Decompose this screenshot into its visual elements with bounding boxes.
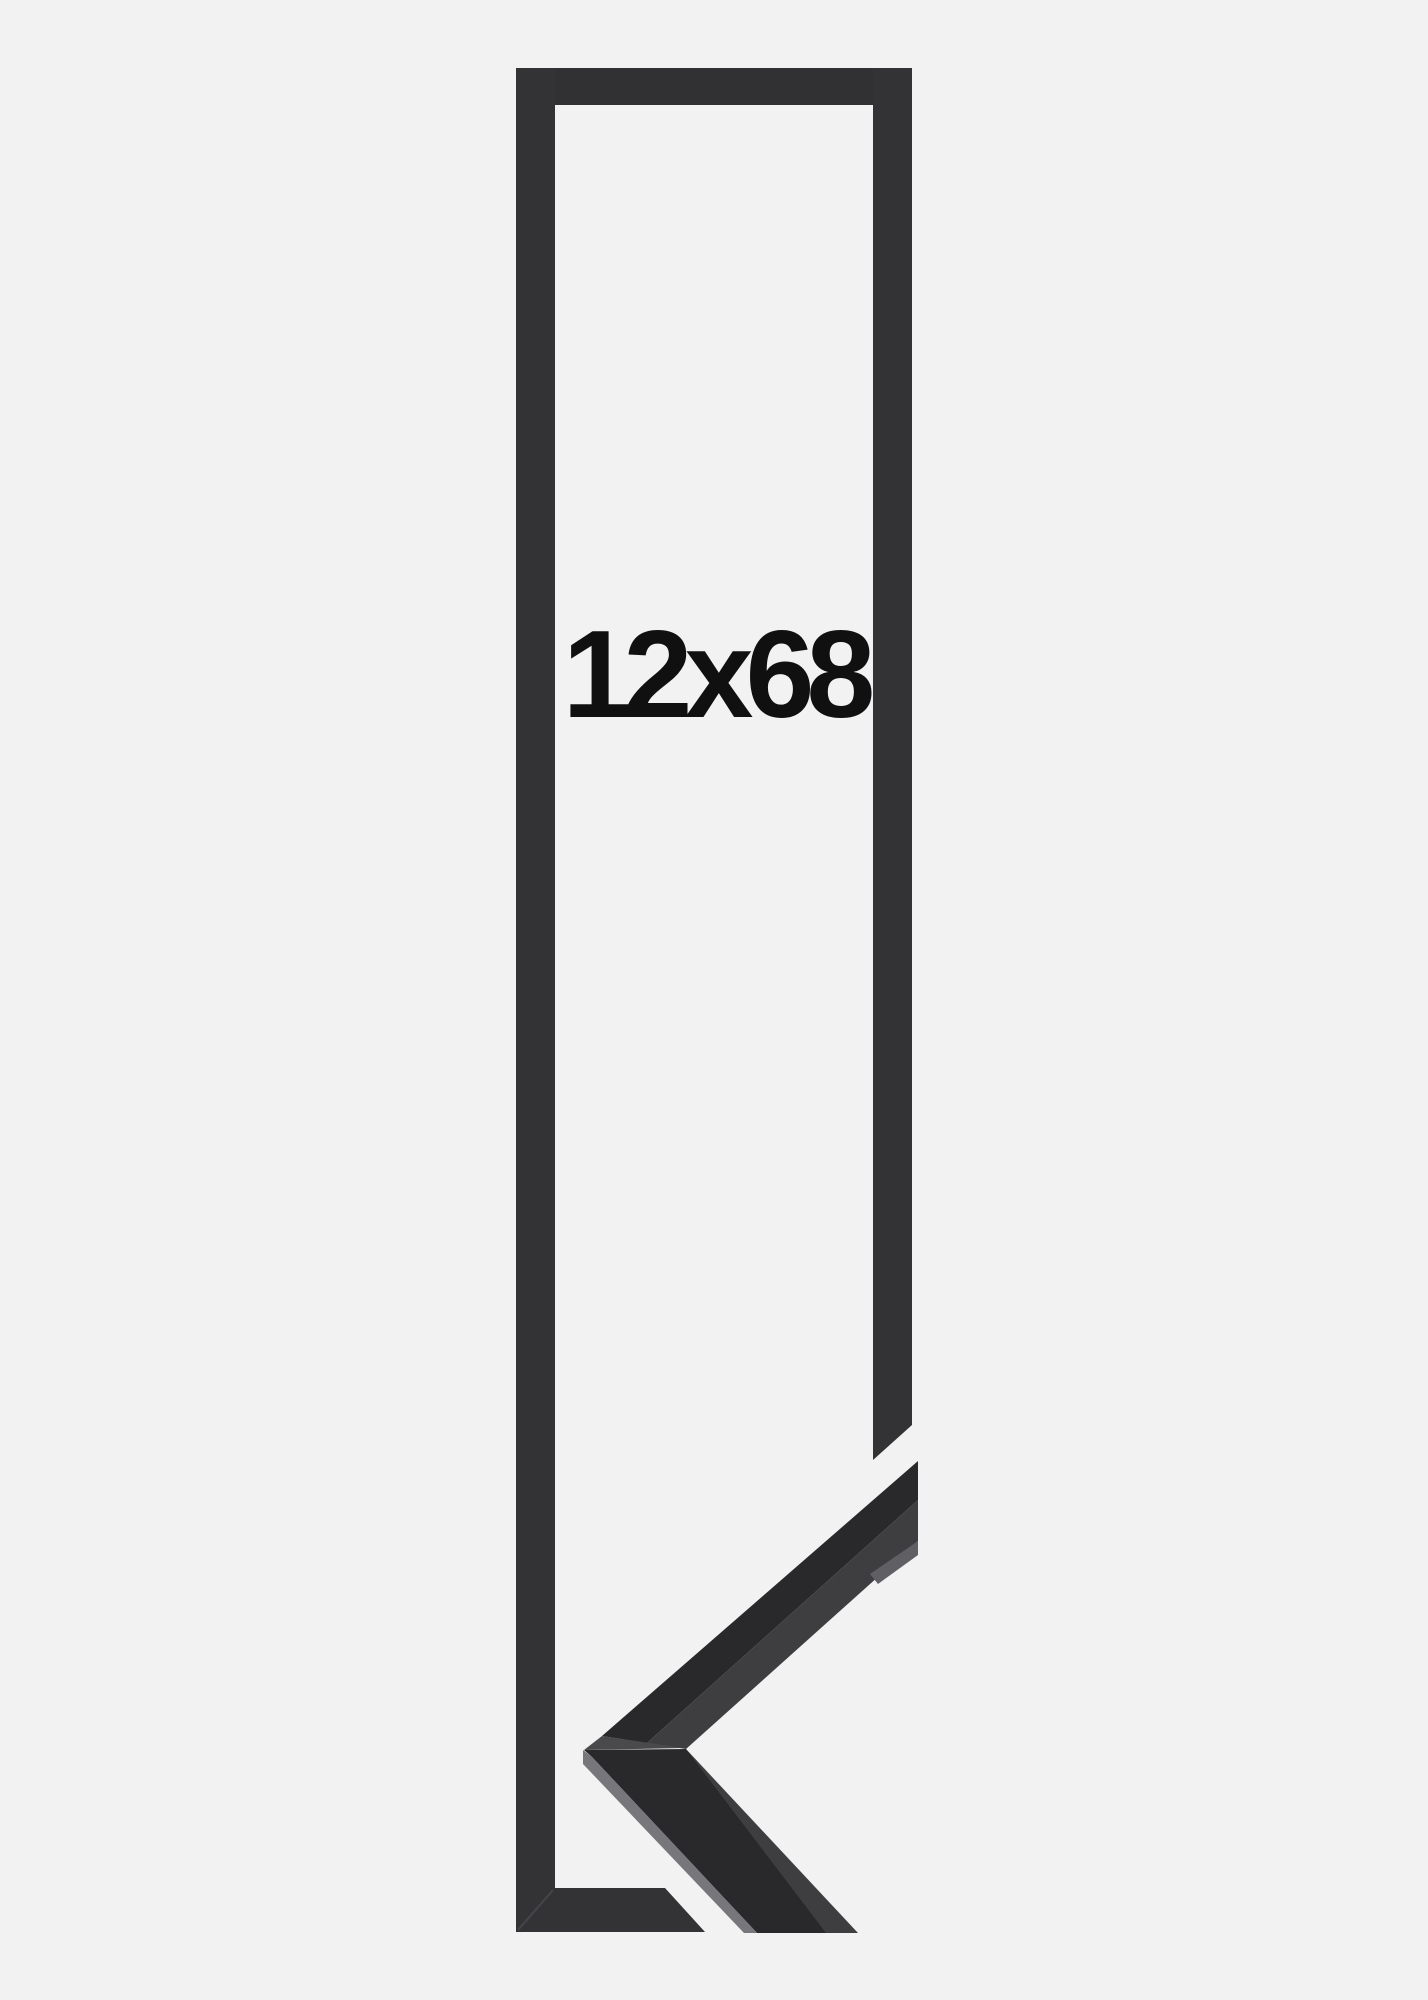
corner-profile-photo xyxy=(583,1461,918,1933)
frame-right-bar xyxy=(873,68,912,1460)
size-label: 12x68 xyxy=(517,613,913,737)
product-image: 12x68 xyxy=(0,0,1428,2000)
frame-bottom-bar xyxy=(516,1888,705,1932)
corner-upper-arm-dark-face xyxy=(602,1461,918,1743)
frame-top-bar xyxy=(516,68,912,105)
frame-left-bar xyxy=(516,68,555,1932)
frame-illustration xyxy=(0,0,1428,2000)
corner-upper-arm-top-face xyxy=(647,1500,918,1749)
